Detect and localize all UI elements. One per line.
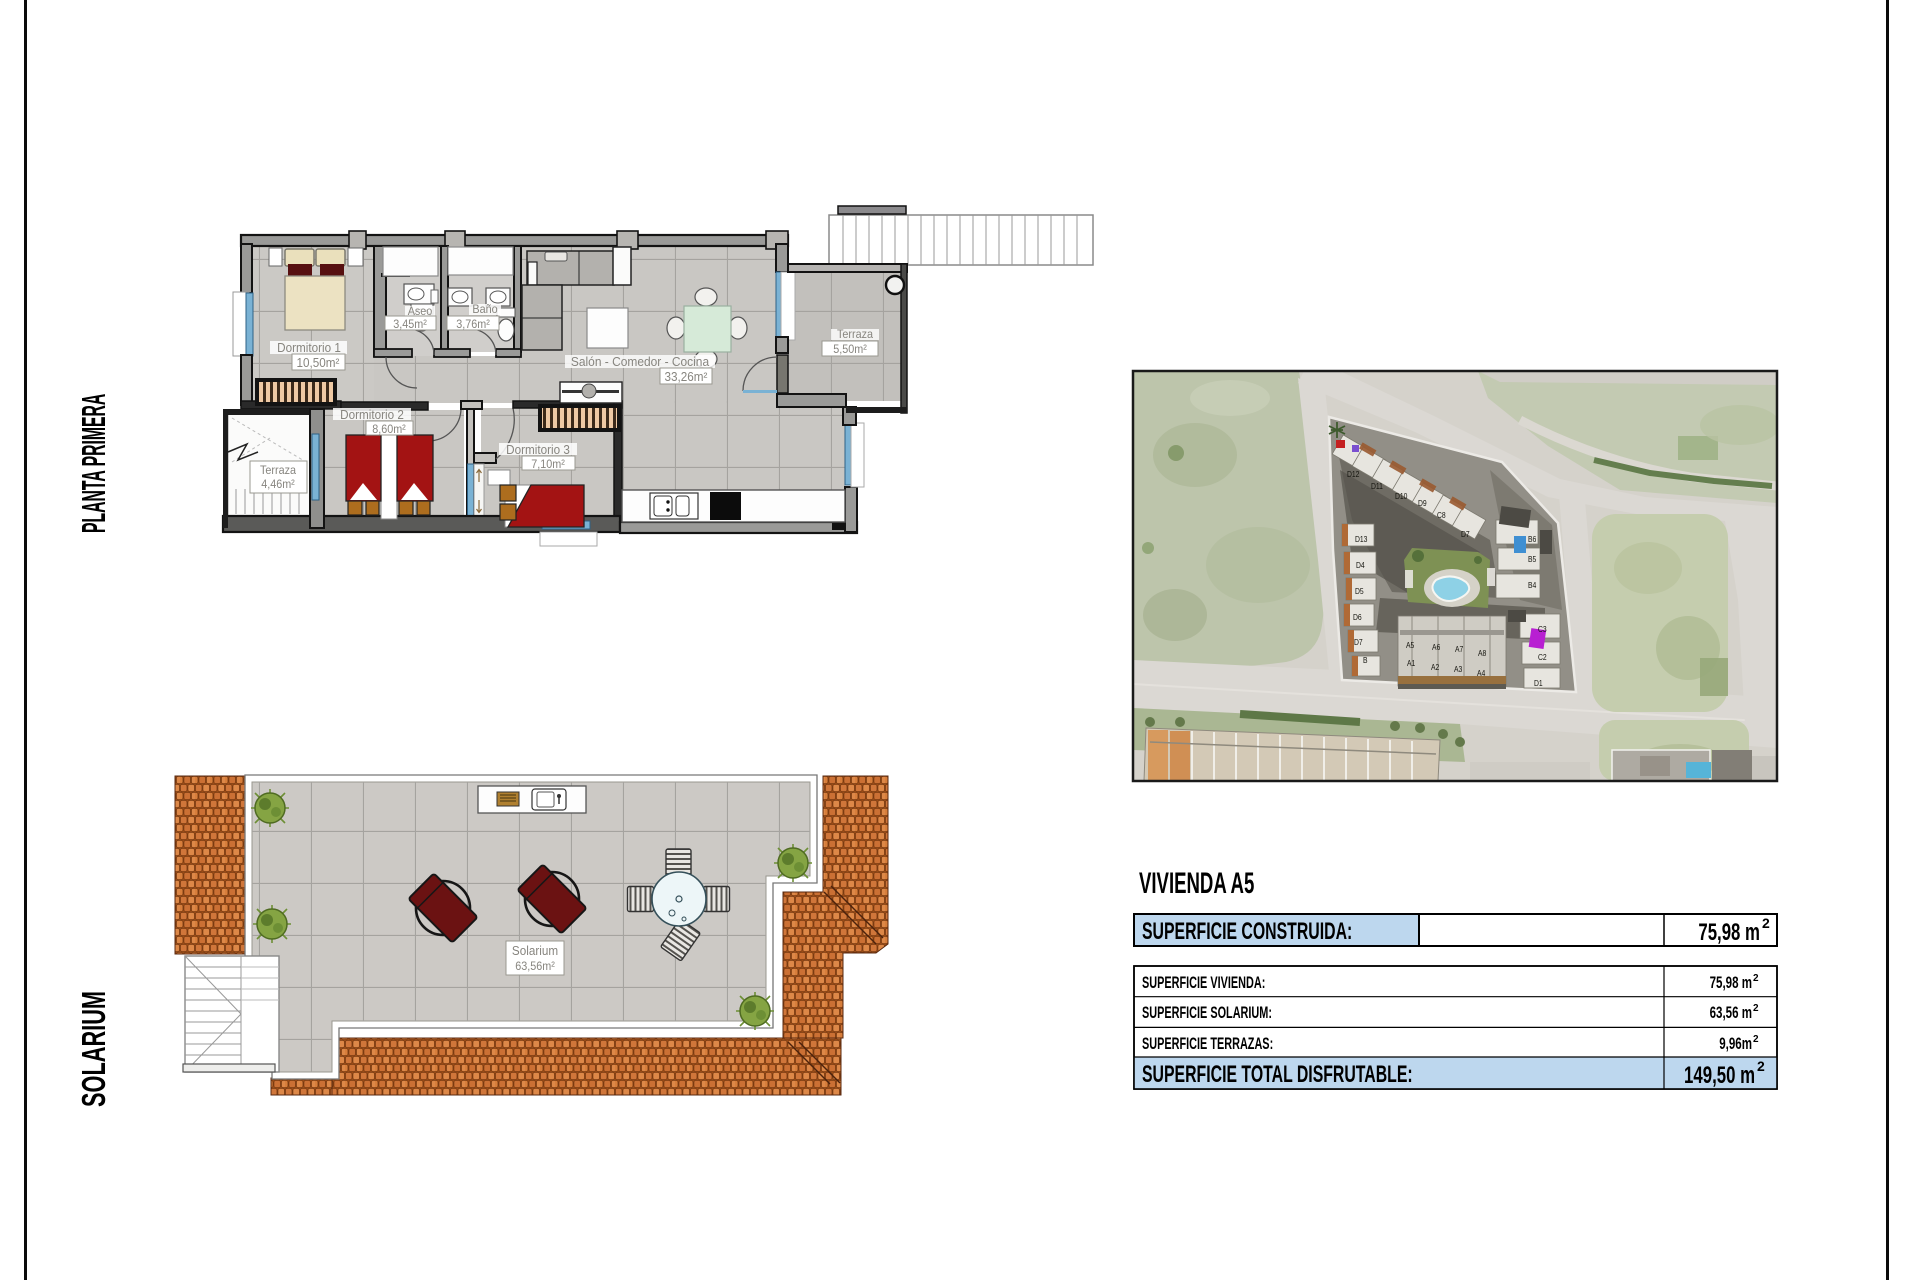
svg-text:D4: D4 <box>1356 560 1365 570</box>
svg-text:10,50m²: 10,50m² <box>297 355 340 370</box>
svg-text:5,50m²: 5,50m² <box>833 344 867 357</box>
svg-text:B6: B6 <box>1528 534 1536 544</box>
svg-text:D9: D9 <box>1418 498 1427 508</box>
svg-text:Salón - Comedor - Cocina: Salón - Comedor - Cocina <box>571 355 709 370</box>
svg-text:A8: A8 <box>1478 648 1486 658</box>
svg-text:3,76m²: 3,76m² <box>456 319 490 332</box>
svg-text:B5: B5 <box>1528 554 1536 564</box>
svg-text:2: 2 <box>1762 915 1770 931</box>
svg-text:A4: A4 <box>1477 668 1486 678</box>
svg-text:SOLARIUM: SOLARIUM <box>75 991 112 1107</box>
svg-text:Solarium: Solarium <box>512 943 558 958</box>
svg-text:Dormitorio 3: Dormitorio 3 <box>506 442 570 457</box>
svg-text:SUPERFICIE VIVIENDA:: SUPERFICIE VIVIENDA: <box>1142 973 1265 992</box>
svg-text:D7: D7 <box>1354 637 1363 647</box>
svg-text:A5: A5 <box>1406 640 1414 650</box>
svg-text:Terraza: Terraza <box>837 329 874 342</box>
svg-text:A6: A6 <box>1432 642 1440 652</box>
svg-text:8,60m²: 8,60m² <box>372 424 406 437</box>
svg-text:C8: C8 <box>1437 510 1446 520</box>
svg-text:D13: D13 <box>1355 534 1367 544</box>
svg-text:A7: A7 <box>1455 644 1463 654</box>
svg-text:9,96m: 9,96m <box>1719 1035 1752 1054</box>
svg-text:Dormitorio 2: Dormitorio 2 <box>340 407 404 422</box>
svg-text:B: B <box>1363 655 1368 665</box>
svg-text:33,26m²: 33,26m² <box>665 369 708 384</box>
svg-text:C2: C2 <box>1538 652 1547 662</box>
svg-text:D5: D5 <box>1355 586 1364 596</box>
svg-text:2: 2 <box>1753 1034 1759 1045</box>
svg-text:63,56 m: 63,56 m <box>1710 1004 1752 1023</box>
svg-text:A3: A3 <box>1454 664 1462 674</box>
svg-text:75,98 m: 75,98 m <box>1710 974 1752 993</box>
svg-text:SUPERFICIE TERRAZAS:: SUPERFICIE TERRAZAS: <box>1142 1034 1273 1053</box>
svg-text:149,50 m: 149,50 m <box>1684 1062 1755 1089</box>
svg-text:75,98 m: 75,98 m <box>1698 919 1760 946</box>
svg-text:7,10m²: 7,10m² <box>531 459 565 472</box>
svg-text:63,56m²: 63,56m² <box>515 961 555 974</box>
svg-text:2: 2 <box>1753 1003 1759 1014</box>
svg-text:D12: D12 <box>1347 469 1359 479</box>
svg-text:A2: A2 <box>1431 662 1439 672</box>
svg-text:D6: D6 <box>1353 612 1362 622</box>
svg-text:Baño: Baño <box>472 304 497 317</box>
svg-text:B4: B4 <box>1528 580 1537 590</box>
svg-text:Dormitorio 1: Dormitorio 1 <box>277 340 341 355</box>
svg-text:4,46m²: 4,46m² <box>261 479 295 492</box>
svg-text:SUPERFICIE CONSTRUIDA:: SUPERFICIE CONSTRUIDA: <box>1142 919 1352 945</box>
svg-text:2: 2 <box>1757 1058 1765 1074</box>
svg-text:3,45m²: 3,45m² <box>393 319 427 332</box>
svg-text:D1: D1 <box>1534 678 1543 688</box>
svg-text:D7: D7 <box>1461 529 1470 539</box>
svg-text:SUPERFICIE TOTAL DISFRUTABLE:: SUPERFICIE TOTAL DISFRUTABLE: <box>1142 1062 1413 1088</box>
svg-text:C3: C3 <box>1538 624 1547 634</box>
svg-text:PLANTA PRIMERA: PLANTA PRIMERA <box>77 394 113 533</box>
svg-text:VIVIENDA A5: VIVIENDA A5 <box>1139 867 1254 901</box>
svg-text:D10: D10 <box>1395 491 1407 501</box>
svg-text:A1: A1 <box>1407 658 1415 668</box>
svg-text:2: 2 <box>1753 973 1759 984</box>
svg-text:D11: D11 <box>1371 481 1383 491</box>
svg-text:SUPERFICIE SOLARIUM:: SUPERFICIE SOLARIUM: <box>1142 1003 1272 1022</box>
svg-text:Terraza: Terraza <box>260 465 297 478</box>
